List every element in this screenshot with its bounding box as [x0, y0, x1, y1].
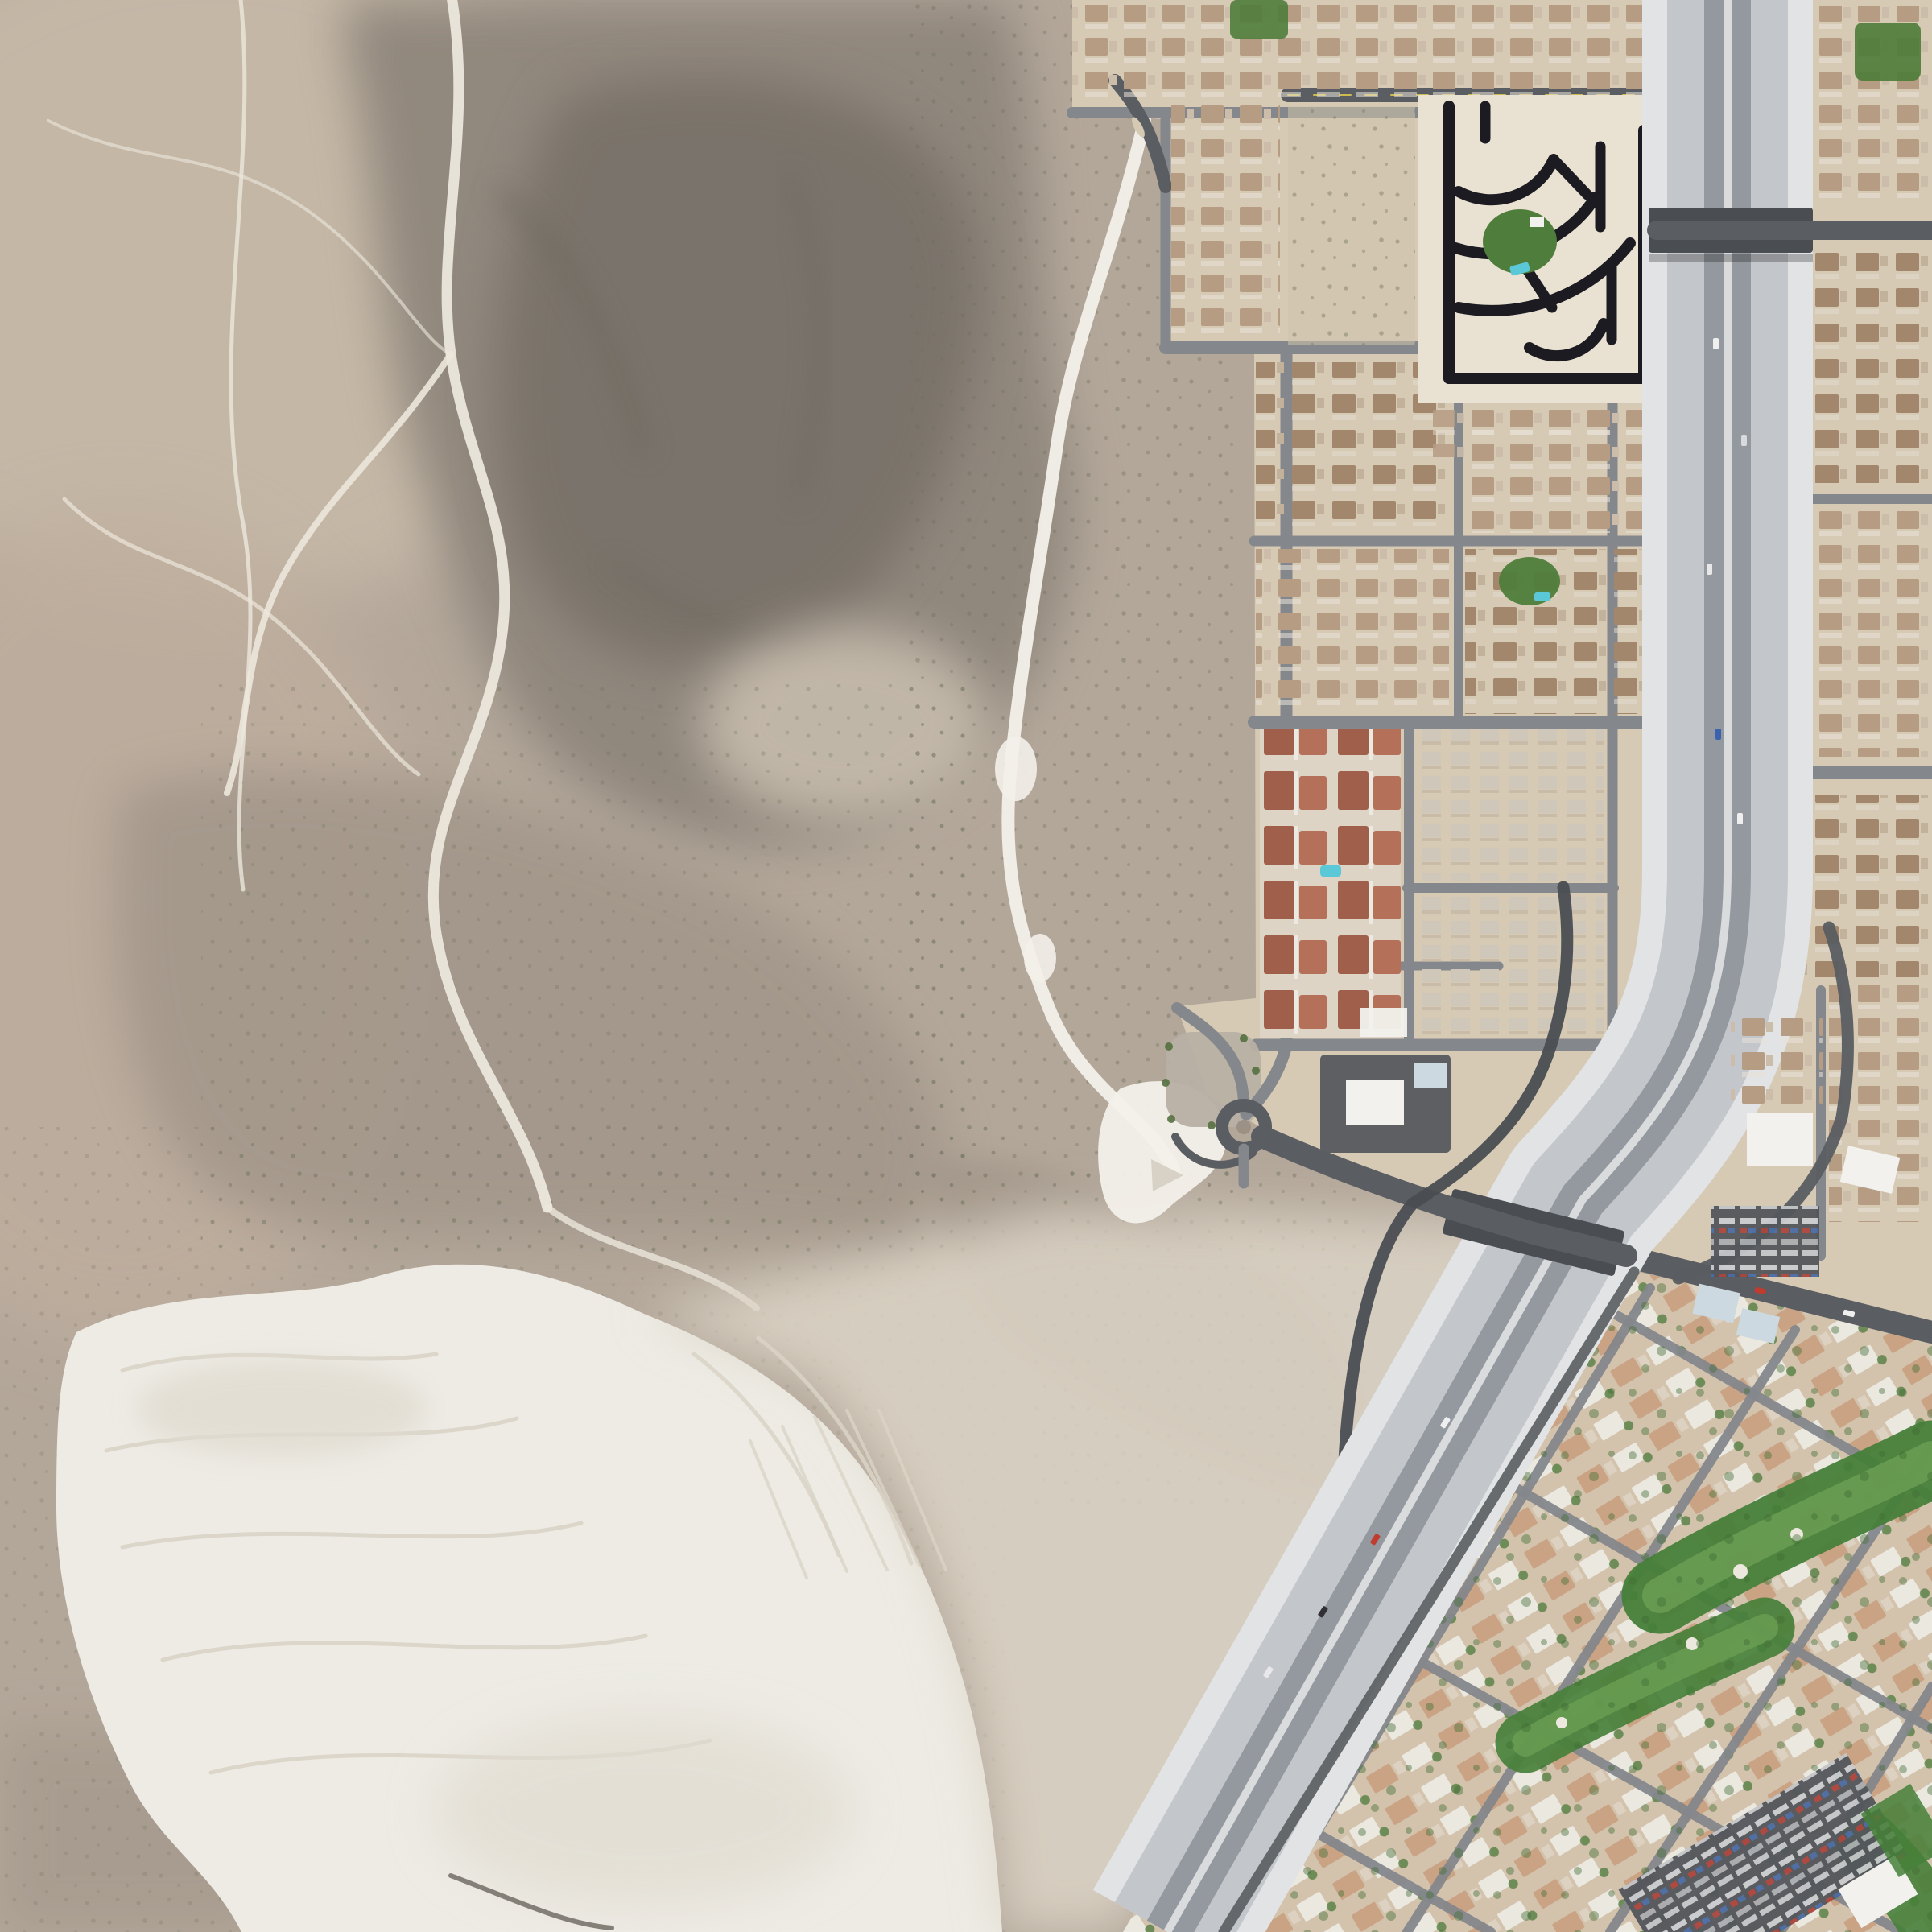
- block-east-3: [1803, 510, 1929, 757]
- gravel-park-tree-5: [1240, 1034, 1248, 1042]
- vehicle-1: [1713, 338, 1719, 349]
- lawn-park-top: [1230, 0, 1288, 39]
- bigbox-store: [1747, 1113, 1813, 1166]
- roundabout-island: [1236, 1120, 1251, 1134]
- pond-upper: [995, 737, 1037, 801]
- satellite-image-stage: [0, 0, 1932, 1932]
- overpass-north-shadow: [1649, 254, 1813, 262]
- vehicle-4: [1715, 729, 1721, 740]
- pocket-park-topright: [1855, 23, 1921, 80]
- graded-shade-2: [435, 1715, 853, 1908]
- gravel-park-tree-3: [1167, 1115, 1175, 1123]
- neighborhood-park-green: [1499, 557, 1560, 605]
- construction-row-strip: [1426, 404, 1662, 457]
- block-west-top-strip: [1072, 5, 1644, 103]
- apartment-pool: [1320, 865, 1341, 877]
- block-west-small-1: [1415, 729, 1604, 881]
- vehicle-2: [1741, 435, 1747, 446]
- vehicle-5: [1737, 813, 1743, 824]
- graded-shade-1: [137, 1360, 427, 1457]
- pond-mid: [1024, 934, 1056, 982]
- vehicle-3: [1707, 563, 1712, 575]
- school-pad-blue: [1414, 1063, 1447, 1088]
- school-building: [1346, 1080, 1404, 1125]
- school-building-north: [1360, 1008, 1407, 1037]
- bigbox-parking-cars: [1711, 1206, 1819, 1277]
- block-west-nw: [1171, 98, 1280, 338]
- subdivision-clubhouse: [1529, 217, 1544, 227]
- block-east-2: [1803, 251, 1929, 483]
- block-west-small-2: [1415, 895, 1604, 1038]
- gravel-park-tree-6: [1252, 1067, 1260, 1075]
- buffer-desert-shrubs: [1288, 106, 1415, 345]
- block-west-3: [1256, 549, 1449, 714]
- neighborhood-park-pool: [1534, 592, 1550, 601]
- gravel-park-tree-1: [1165, 1042, 1173, 1051]
- aerial-satellite-photo: [0, 0, 1932, 1932]
- gravel-park-tree-2: [1162, 1079, 1170, 1087]
- commercial-condo-strip: [1731, 1016, 1823, 1106]
- block-east-4: [1802, 795, 1929, 977]
- apartment-complex-red-roofs: [1260, 729, 1401, 1038]
- gravel-park-tree-8: [1207, 1121, 1216, 1129]
